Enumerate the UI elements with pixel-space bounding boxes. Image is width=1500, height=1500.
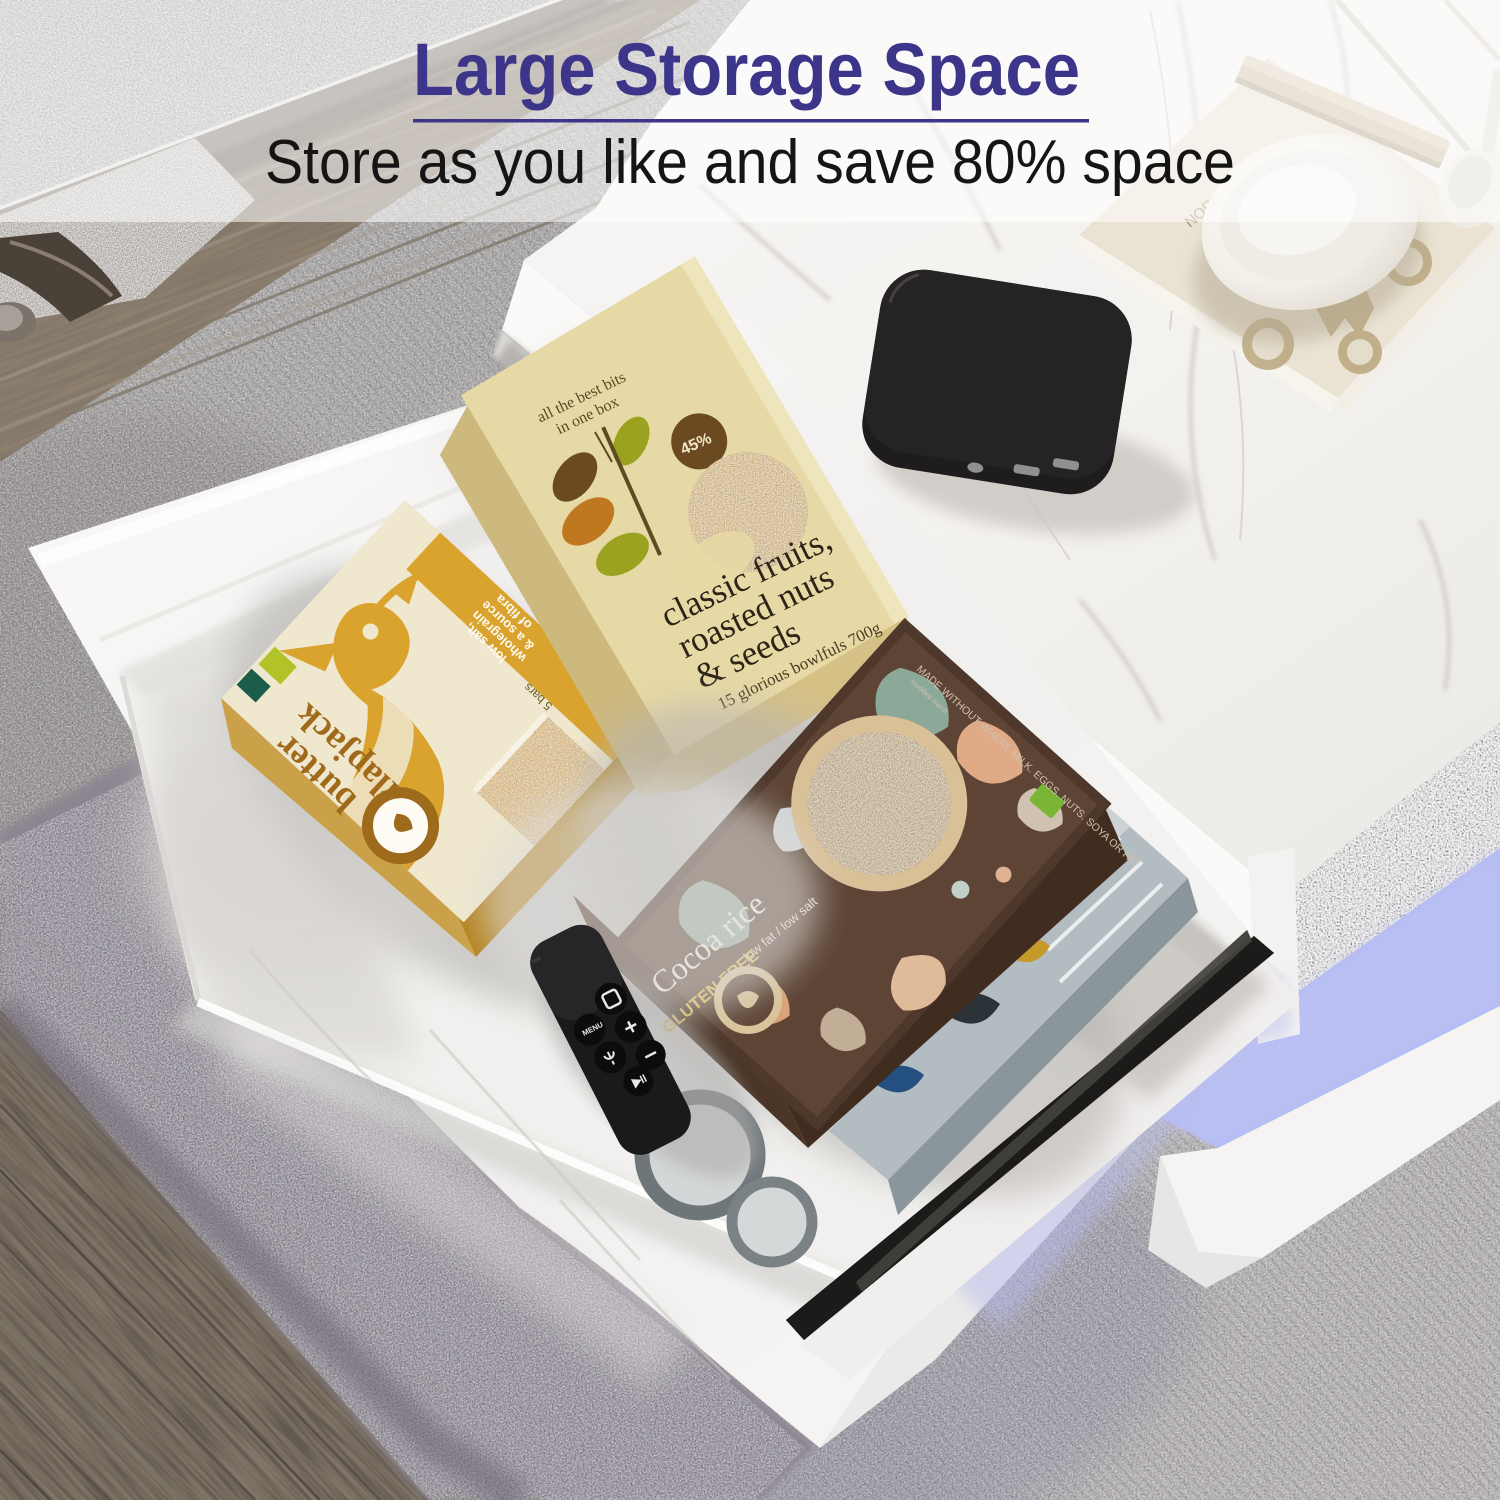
svg-text:Store as you like and save 80%: Store as you like and save 80% space xyxy=(265,128,1235,197)
svg-text:Large Storage Space: Large Storage Space xyxy=(413,28,1080,111)
